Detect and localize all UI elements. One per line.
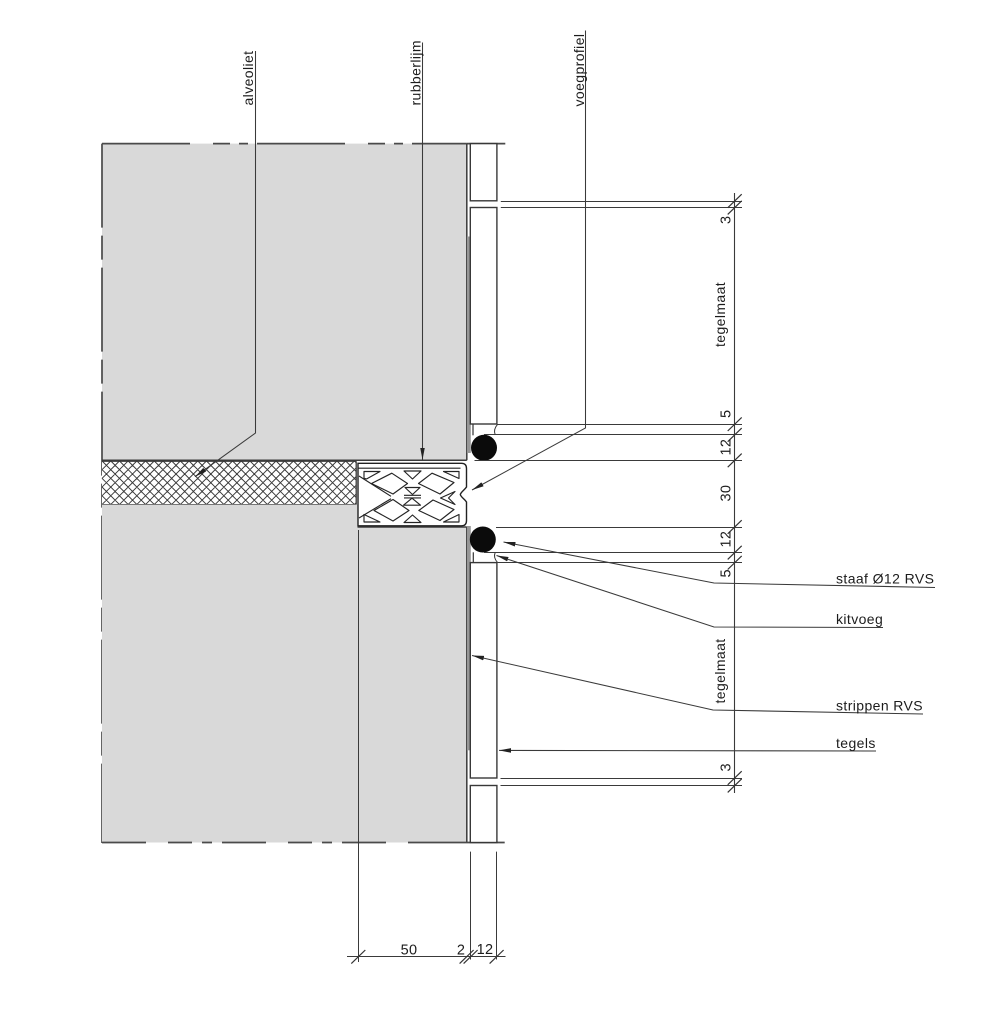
svg-text:12: 12 [477, 942, 494, 958]
svg-text:5: 5 [719, 569, 735, 577]
svg-text:12: 12 [719, 531, 735, 548]
svg-text:strippen RVS: strippen RVS [836, 698, 923, 714]
svg-text:alveoliet: alveoliet [240, 51, 256, 106]
svg-text:tegelmaat: tegelmaat [712, 638, 728, 703]
svg-text:tegels: tegels [836, 735, 876, 751]
svg-text:12: 12 [719, 439, 735, 456]
svg-text:30: 30 [719, 485, 735, 502]
svg-text:5: 5 [719, 410, 735, 418]
svg-text:kitvoeg: kitvoeg [836, 611, 883, 627]
svg-text:3: 3 [719, 763, 735, 771]
svg-text:50: 50 [401, 943, 418, 959]
svg-text:voegprofiel: voegprofiel [571, 34, 587, 107]
svg-text:staaf Ø12 RVS: staaf Ø12 RVS [836, 571, 934, 587]
svg-text:tegelmaat: tegelmaat [712, 282, 728, 347]
svg-text:3: 3 [719, 216, 735, 224]
svg-text:rubberlijm: rubberlijm [408, 40, 424, 105]
svg-text:2: 2 [457, 943, 465, 959]
